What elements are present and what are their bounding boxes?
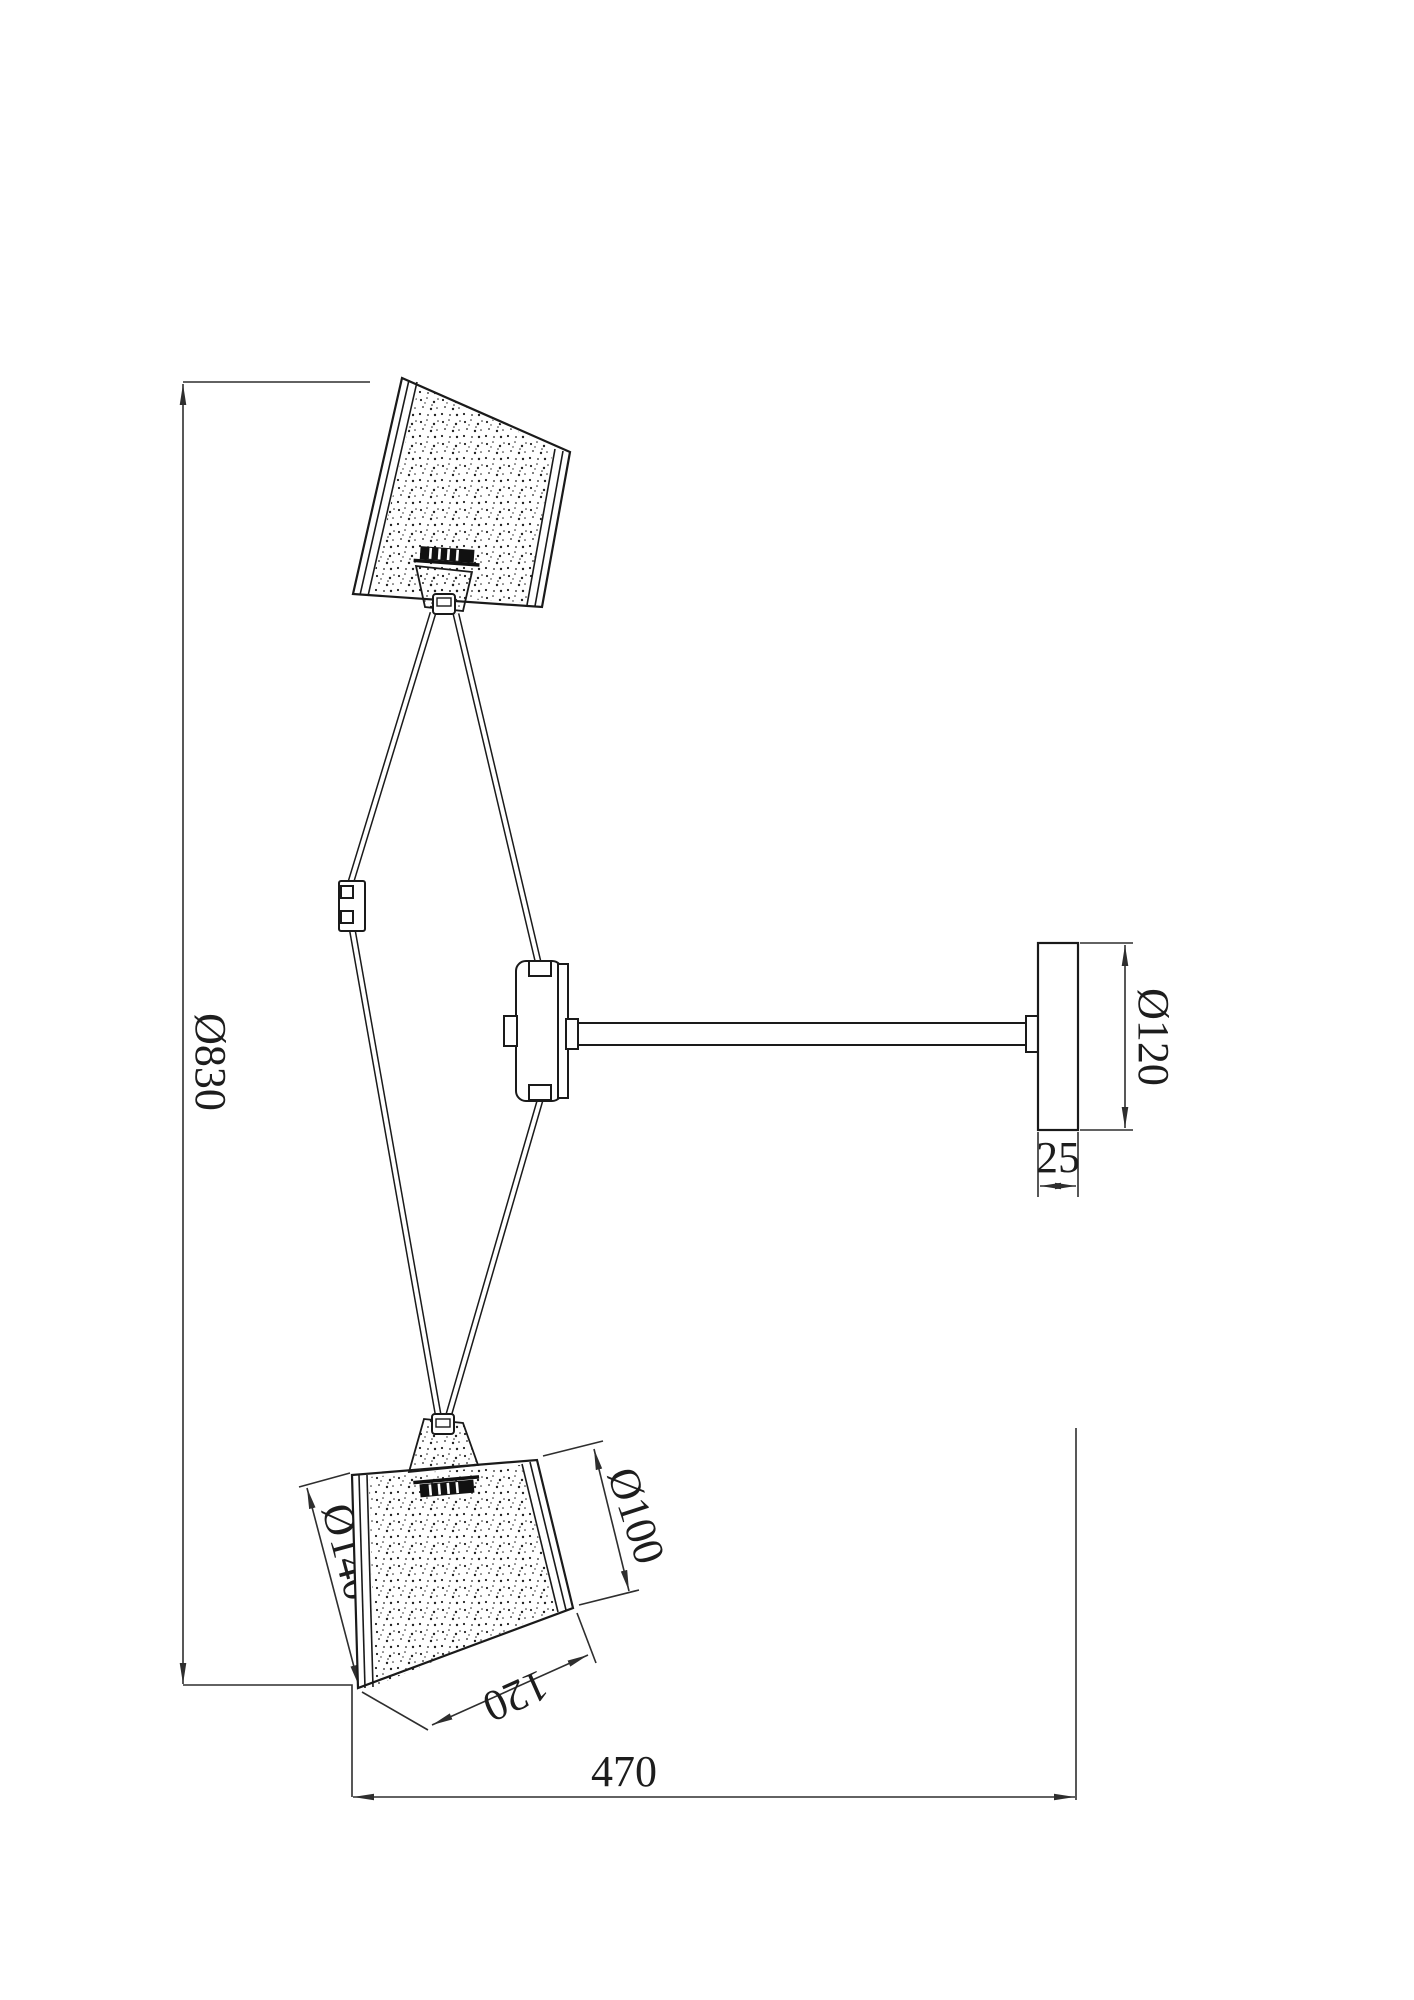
top-shade-knob (433, 594, 455, 614)
arm-collar (1026, 1016, 1038, 1052)
pivot-clip (339, 881, 365, 931)
overall-height-label: Ø830 (186, 1013, 235, 1111)
shade-height-label: 120 (476, 1660, 556, 1732)
canopy-depth-label: 25 (1036, 1133, 1080, 1182)
center-hub (504, 961, 568, 1101)
drawing-canvas: Ø830 470 Ø120 25 Ø140 Ø100 120 (0, 0, 1414, 2000)
extension-line (543, 1441, 603, 1456)
scissor-arms (350, 613, 541, 1414)
extension-line (299, 1473, 350, 1487)
bottom-shade (352, 1460, 573, 1688)
wall-lamp-technical-drawing: Ø830 470 Ø120 25 Ø140 Ø100 120 (0, 0, 1414, 2000)
shade-small-diameter-label: Ø100 (598, 1462, 675, 1570)
mounting-arm (566, 1016, 1038, 1052)
shade-texture (369, 1465, 556, 1686)
extension-line (579, 1590, 639, 1605)
projection-label: 470 (591, 1747, 657, 1796)
extension-line (362, 1692, 428, 1730)
top-shade-neck (416, 566, 472, 614)
bottom-shade-neck (409, 1414, 478, 1472)
wall-plate (1038, 943, 1078, 1130)
extension-line-step (183, 1685, 352, 1797)
dimension-canopy-diameter (1080, 943, 1133, 1130)
canopy-diameter-label: Ø120 (1129, 988, 1178, 1086)
bottom-shade-knob (432, 1414, 454, 1434)
